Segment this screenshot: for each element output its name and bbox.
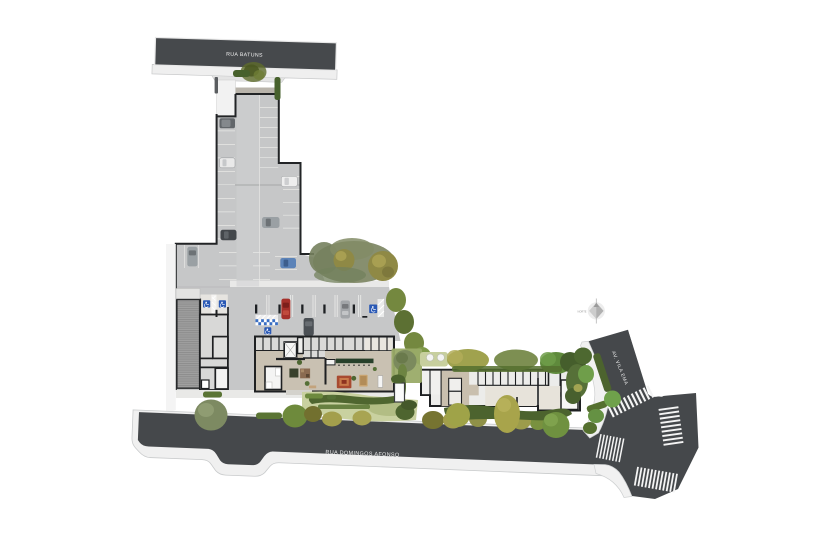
svg-text:RUA BATUNS: RUA BATUNS <box>226 52 263 59</box>
svg-text:NORTE: NORTE <box>577 310 586 314</box>
